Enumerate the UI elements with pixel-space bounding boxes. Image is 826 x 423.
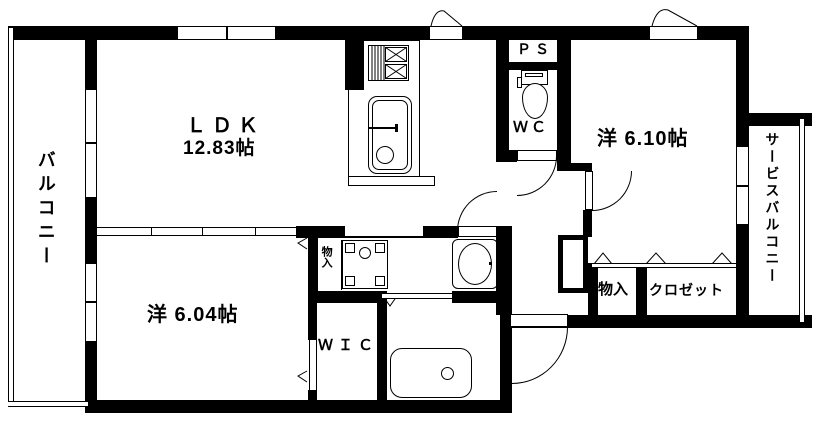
faucet-handle-icon [395, 124, 398, 132]
floor-plan: ＬＤＫ 12.83帖 洋 6.10帖 洋 6.04帖 バルコニー サービスバルコ… [0, 0, 826, 423]
western-room-1-label: 洋 6.10帖 [597, 128, 688, 150]
room1-north-window [650, 26, 697, 40]
faucet-icon [369, 127, 397, 129]
window-tick [85, 142, 97, 144]
outer-wall-bottom-left [85, 400, 512, 413]
window-tick [736, 185, 749, 187]
washer-corner-br [375, 276, 385, 286]
washer-corner-bl [345, 276, 355, 286]
storage-ldk-label: 物入 [320, 246, 332, 268]
ldk-south-wall-east [423, 226, 458, 238]
washer-corner-tl [345, 243, 355, 253]
hall-storage-west-wall [588, 263, 598, 315]
vanity-faucet-dot [489, 262, 492, 265]
ps-wc-divider-wall [509, 62, 557, 70]
wc-door-arc [517, 156, 557, 196]
storage-divider-line [341, 240, 342, 290]
ldk-door-arc [457, 191, 497, 231]
washer-pan-fixture [342, 240, 388, 289]
toilet-control [517, 77, 522, 88]
ldk-room2-sliding-track [97, 227, 296, 236]
room1-west-wall-lower [583, 210, 592, 237]
wic-west-folding-track [309, 340, 317, 390]
outer-wall-right-mid1 [736, 126, 749, 147]
closet-divider-wall [636, 267, 647, 315]
bathtub-fixture [390, 348, 472, 398]
stove-fixture [368, 45, 409, 81]
closet-label: クロゼット [649, 283, 724, 298]
kitchen-shelf [348, 176, 435, 186]
storage-hall-label: 物入 [598, 282, 628, 299]
folding-door-chevron-left [297, 370, 308, 383]
outer-wall-left-upper [85, 26, 97, 90]
kitchen-partition-wall [345, 32, 364, 90]
wic-east-wall [377, 291, 387, 400]
toilet-tank-lid [525, 73, 543, 77]
service-balcony-label: サービスバルコニー [764, 132, 779, 285]
sliding-panel-divider [255, 227, 256, 236]
awning-window-arc [430, 8, 462, 27]
washroom-south-wall-west [308, 291, 378, 303]
awning-window-arc [650, 6, 697, 27]
washer-corner-tr [375, 243, 385, 253]
ps-label: ＰＳ [517, 42, 553, 57]
closet-folding-track [592, 263, 736, 268]
window-tick [85, 301, 97, 303]
bath-sliding-track [382, 293, 452, 299]
ldk-east-wall [496, 40, 509, 150]
ldk-size-label: 12.83帖 [183, 139, 256, 160]
entrance-side-wall [500, 315, 512, 413]
toilet-fixture [516, 68, 550, 120]
storage-west-wall [308, 230, 318, 292]
outer-wall-left-mid [85, 197, 97, 264]
room1-door-arc [592, 171, 632, 211]
entrance-door-leaf [510, 314, 568, 327]
western-room-2-label: 洋 6.04帖 [147, 304, 238, 326]
ldk-south-wall-west [296, 226, 345, 238]
room1-west-wall-stub [561, 163, 592, 171]
outer-wall-top [8, 26, 748, 40]
wic-west-wall-lower [308, 390, 317, 400]
toilet-bowl [522, 83, 548, 119]
sliding-panel-divider [202, 227, 203, 236]
ldk-room-label: ＬＤＫ [186, 115, 264, 137]
balcony-rail-left [8, 28, 14, 407]
entrance-door-arc [512, 327, 568, 384]
wic-label: ＷＩＣ [318, 338, 378, 355]
balcony-label: バルコニー [35, 150, 55, 270]
bathtub-drain [441, 367, 454, 380]
outer-wall-right-mid2 [736, 224, 749, 327]
shoe-storage-box [558, 235, 588, 293]
kitchen-north-window [430, 26, 462, 40]
wc-east-wall [557, 40, 571, 171]
sink-drain [376, 146, 394, 164]
balcony-rail-bottom [8, 401, 88, 407]
service-balcony-rail-right [799, 119, 805, 322]
washroom-boundary-line [345, 236, 423, 238]
wic-west-wall-upper [308, 302, 317, 340]
window-center-tick [226, 26, 228, 40]
folding-door-chevron-left [297, 237, 308, 250]
outer-wall-right-upper [736, 26, 749, 115]
vanity-bowl [458, 243, 492, 285]
sliding-panel-divider [151, 227, 152, 236]
wc-label: ＷＣ [513, 120, 549, 137]
washer-drain [359, 247, 371, 259]
wc-south-wall [496, 150, 517, 162]
washroom-south-wall-east [452, 291, 500, 303]
